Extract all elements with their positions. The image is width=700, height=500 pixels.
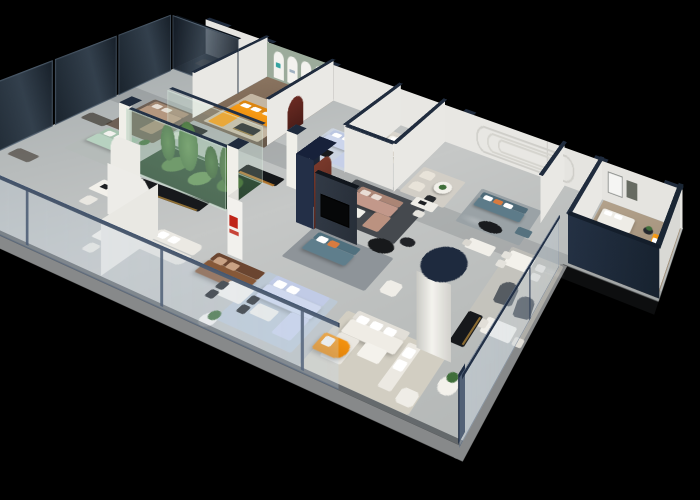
glass-mullion	[529, 264, 530, 321]
floor-plane	[0, 53, 683, 500]
showroom-render-canvas	[0, 0, 700, 500]
wall-art-frame	[627, 180, 638, 201]
cylinder-column-body	[416, 271, 451, 363]
media-tower-face	[296, 154, 314, 230]
